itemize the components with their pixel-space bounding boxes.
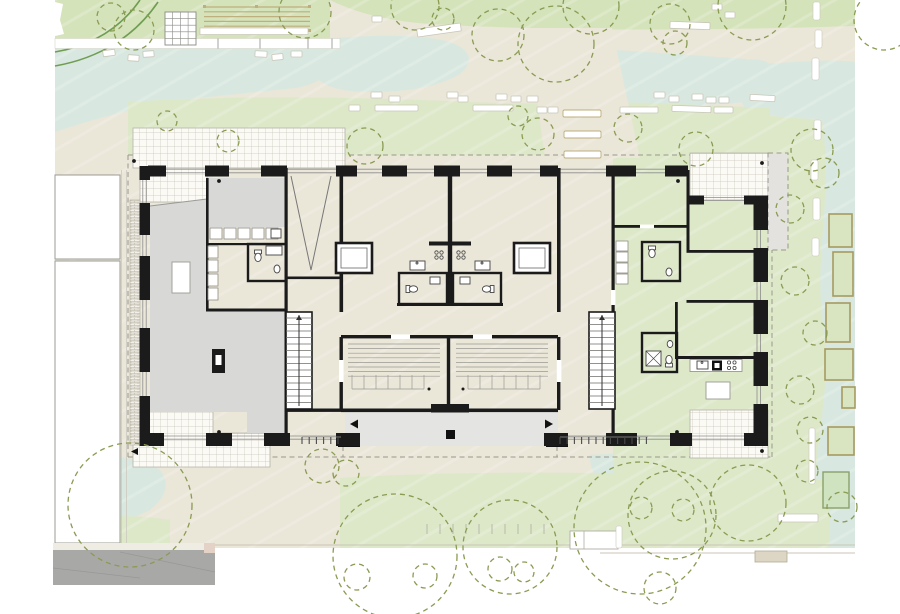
sandbox xyxy=(823,472,849,508)
stone xyxy=(128,55,139,62)
garden-bed xyxy=(826,303,850,342)
bench xyxy=(473,105,513,111)
north-west-room xyxy=(207,178,286,227)
garden-bed xyxy=(828,427,854,455)
wall-pier xyxy=(336,166,357,177)
stone xyxy=(103,49,116,57)
stone xyxy=(712,4,722,10)
stone xyxy=(496,94,507,100)
path-segment xyxy=(814,120,821,140)
garden-step xyxy=(564,151,601,158)
wall-pier xyxy=(754,404,769,433)
garden-step xyxy=(564,131,601,138)
stone xyxy=(719,97,729,103)
entrance-arcade xyxy=(345,412,558,446)
path-segment xyxy=(813,198,820,220)
drain-dot xyxy=(675,430,679,434)
stone xyxy=(706,97,716,103)
wall-pier xyxy=(665,166,688,177)
path-segment xyxy=(812,238,819,256)
pergola-bench xyxy=(200,28,308,35)
wall-pier xyxy=(670,433,692,446)
tree-icon xyxy=(488,557,512,581)
path-segment xyxy=(809,428,815,484)
drain-dot xyxy=(217,179,221,183)
table-west xyxy=(172,262,190,293)
wall-pier xyxy=(206,433,232,446)
stone xyxy=(372,16,382,22)
wall-pier xyxy=(205,166,229,177)
wall-pier xyxy=(744,433,768,446)
wall-pier xyxy=(544,433,568,446)
path-segment xyxy=(812,58,819,80)
stone xyxy=(291,51,302,57)
bench xyxy=(375,105,418,111)
elevator-right xyxy=(514,243,550,273)
stone xyxy=(725,12,735,18)
wall-pier xyxy=(754,200,769,230)
wall-pier xyxy=(754,300,769,334)
tree-icon xyxy=(854,0,900,50)
tree-icon xyxy=(514,562,534,582)
stone xyxy=(389,96,400,102)
wall-pier xyxy=(336,433,360,446)
staircase xyxy=(286,312,312,409)
garden-bed xyxy=(833,252,853,296)
stone xyxy=(255,51,267,58)
road xyxy=(53,543,215,585)
road-marker xyxy=(204,543,215,553)
tree-icon xyxy=(344,564,370,590)
wall-pier xyxy=(140,256,151,300)
terrace-north-west xyxy=(133,128,345,168)
elevator-left xyxy=(336,243,372,273)
arcade-column xyxy=(446,430,455,439)
bench xyxy=(620,107,658,113)
stone xyxy=(537,107,547,113)
neighbor-building xyxy=(55,170,127,543)
wall-pier xyxy=(148,166,166,177)
tree-icon xyxy=(413,564,437,588)
drain-dot xyxy=(132,159,136,163)
wall-pier xyxy=(140,203,151,235)
bench xyxy=(672,105,711,112)
drain-dot xyxy=(760,161,764,165)
wall-pier xyxy=(540,166,558,177)
wall-pier xyxy=(264,433,290,446)
wall-pier xyxy=(261,166,287,177)
drain-dot xyxy=(217,430,221,434)
stone xyxy=(548,107,558,113)
wall-pier xyxy=(434,166,460,177)
wall-pier xyxy=(382,166,407,177)
terrace-edge-hatch xyxy=(130,200,140,445)
garden-bed xyxy=(829,214,852,247)
path-step xyxy=(755,551,787,562)
stone xyxy=(692,94,703,100)
stone xyxy=(447,92,458,98)
stone xyxy=(527,96,538,102)
wall-pier xyxy=(140,396,151,430)
drain-dot xyxy=(760,449,764,453)
wall-pier xyxy=(606,166,636,177)
stone xyxy=(143,51,154,58)
garden-step xyxy=(563,110,601,117)
bench xyxy=(714,107,733,113)
stone xyxy=(371,92,382,98)
wall-pier xyxy=(140,166,151,180)
terrace-north-east xyxy=(690,153,768,200)
wall-pier xyxy=(140,328,151,372)
drain-dot xyxy=(676,179,680,183)
wall-pier xyxy=(148,433,164,446)
stone xyxy=(349,105,360,111)
path-segment xyxy=(616,526,622,548)
path-segment xyxy=(815,30,822,48)
exterior-steps xyxy=(165,12,196,45)
stone xyxy=(272,54,283,61)
tree-icon xyxy=(644,572,676,604)
wall-pier xyxy=(754,352,769,386)
stone xyxy=(458,96,468,102)
garden-bed xyxy=(825,349,853,380)
floor-plan-drawing xyxy=(0,0,900,614)
path-segment xyxy=(813,2,820,20)
garden-structure xyxy=(570,531,618,549)
stone xyxy=(654,92,665,98)
table-east xyxy=(706,382,730,399)
roof-overhang-east xyxy=(768,153,788,250)
wall-pier xyxy=(754,248,769,282)
staircase xyxy=(589,312,615,409)
wall-pier xyxy=(140,430,151,446)
garden-bed xyxy=(842,387,855,408)
site-plan-page xyxy=(0,0,900,614)
wall-pier xyxy=(487,166,512,177)
stone xyxy=(669,96,679,102)
bench xyxy=(750,94,775,101)
stone xyxy=(511,96,521,102)
wall-pier xyxy=(688,196,704,205)
